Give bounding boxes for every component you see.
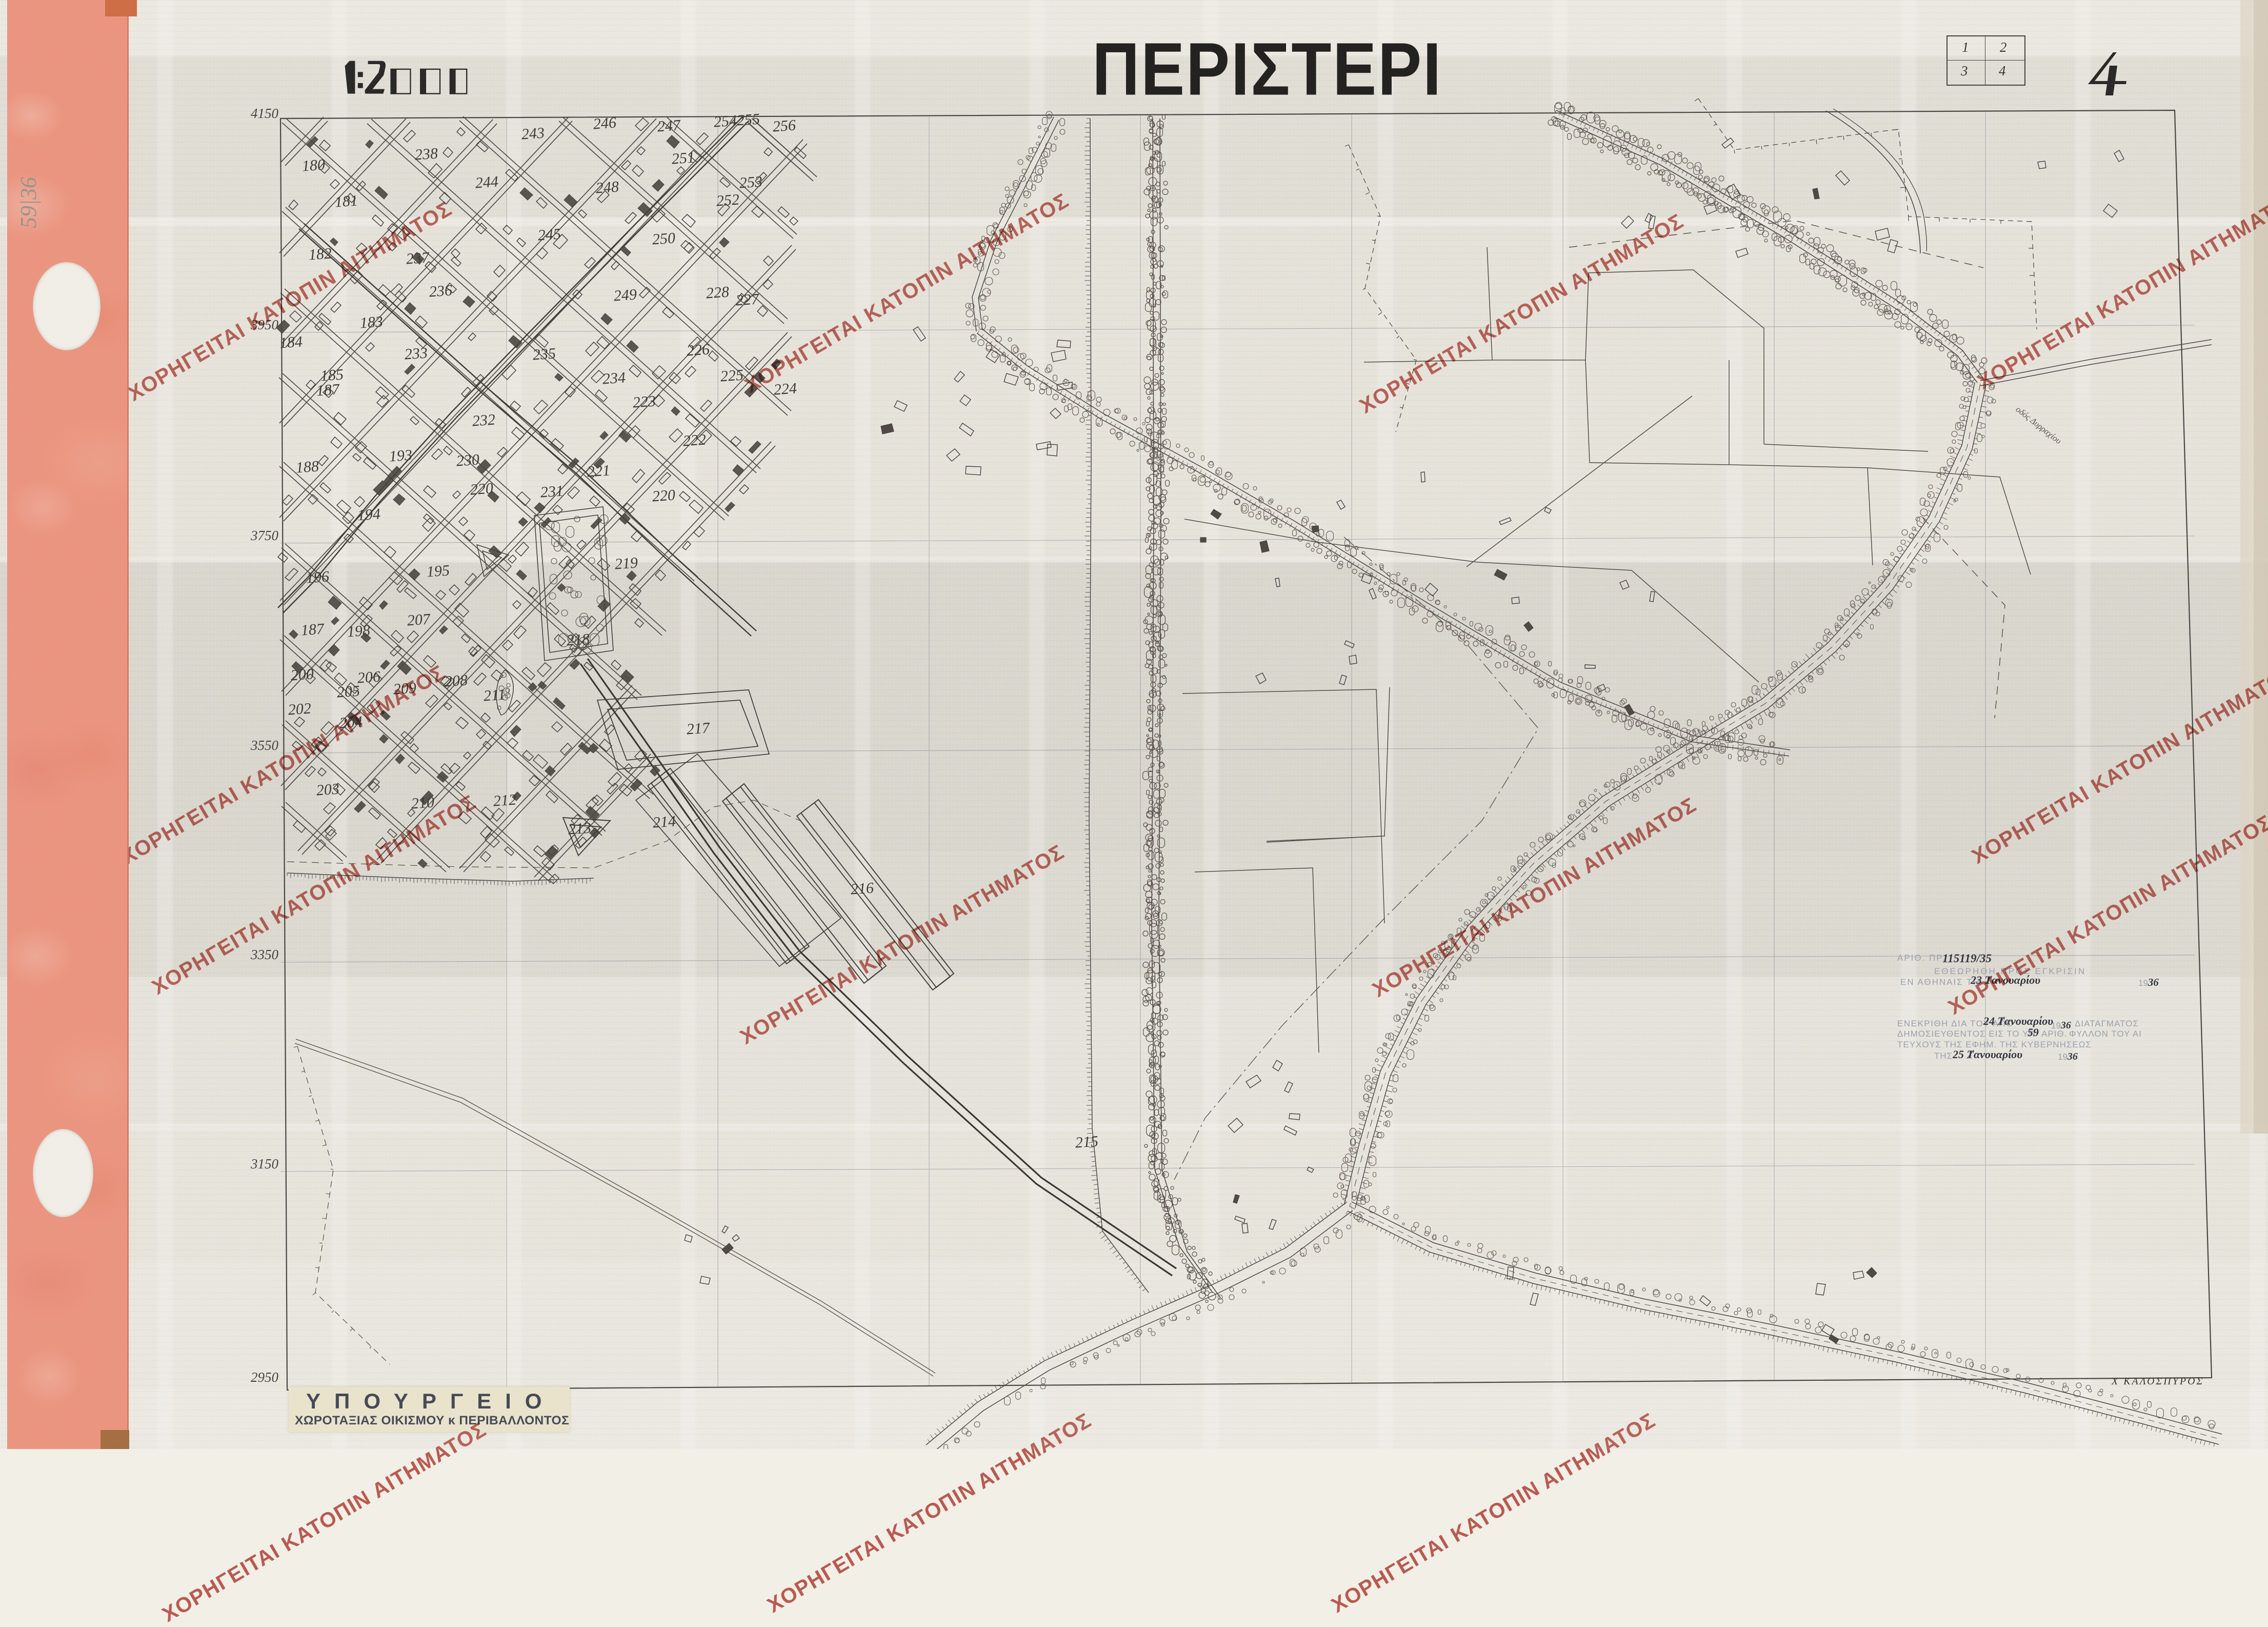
svg-text:212: 212 (493, 791, 517, 809)
svg-text:196: 196 (306, 568, 330, 586)
svg-text:227: 227 (735, 290, 760, 309)
svg-text:250: 250 (652, 229, 676, 248)
svg-text:235: 235 (532, 345, 556, 363)
svg-text:3350: 3350 (250, 947, 279, 962)
svg-text:195: 195 (426, 562, 450, 580)
svg-text:οδός Δυρραχίου: οδός Δυρραχίου (2014, 404, 2063, 446)
svg-text:188: 188 (295, 458, 319, 476)
svg-text:194: 194 (357, 505, 381, 524)
svg-text:2950: 2950 (251, 1370, 279, 1385)
svg-text:183: 183 (359, 313, 384, 331)
svg-text:214: 214 (652, 812, 676, 831)
svg-text:254: 254 (713, 112, 737, 130)
svg-text:225: 225 (720, 366, 744, 385)
svg-text:213: 213 (568, 819, 592, 838)
svg-text:187: 187 (316, 381, 341, 399)
svg-text:219: 219 (614, 554, 638, 572)
svg-text:237: 237 (406, 249, 431, 267)
svg-text:202: 202 (288, 700, 312, 718)
svg-text:246: 246 (593, 114, 617, 132)
svg-text:220: 220 (470, 480, 494, 498)
svg-text:3150: 3150 (250, 1156, 279, 1172)
svg-text:206: 206 (357, 668, 381, 686)
svg-text:247: 247 (657, 116, 682, 135)
svg-text:251: 251 (671, 149, 695, 167)
svg-text:218: 218 (566, 630, 590, 649)
svg-text:3550: 3550 (250, 738, 279, 753)
svg-text:245: 245 (537, 225, 561, 244)
svg-text:4150: 4150 (251, 106, 279, 121)
svg-text:220: 220 (652, 486, 676, 505)
svg-text:223: 223 (632, 392, 656, 411)
svg-text:205: 205 (336, 682, 360, 701)
svg-text:187: 187 (300, 620, 326, 639)
svg-text:181: 181 (334, 192, 358, 210)
svg-text:203: 203 (316, 780, 340, 799)
svg-text:207: 207 (407, 610, 432, 629)
svg-text:232: 232 (472, 411, 496, 429)
svg-text:231: 231 (540, 482, 564, 501)
svg-text:217: 217 (686, 719, 711, 738)
svg-text:215: 215 (1075, 1133, 1099, 1151)
svg-text:200: 200 (290, 665, 314, 684)
svg-text:234: 234 (602, 369, 626, 387)
svg-text:248: 248 (595, 178, 619, 196)
svg-text:230: 230 (456, 451, 480, 469)
svg-text:238: 238 (414, 145, 438, 163)
svg-text:180: 180 (302, 156, 326, 174)
svg-text:236: 236 (429, 282, 453, 300)
svg-text:198: 198 (347, 622, 371, 640)
svg-text:256: 256 (772, 116, 796, 135)
svg-text:184: 184 (279, 333, 303, 351)
svg-text:193: 193 (389, 446, 413, 465)
svg-text:216: 216 (850, 879, 874, 898)
svg-text:253: 253 (739, 173, 763, 191)
svg-text:233: 233 (404, 344, 428, 363)
svg-text:252: 252 (716, 191, 740, 209)
svg-text:222: 222 (683, 431, 707, 449)
svg-text:210: 210 (411, 793, 435, 812)
svg-text:182: 182 (308, 245, 332, 263)
svg-text:243: 243 (521, 124, 545, 143)
svg-text:211: 211 (483, 686, 506, 705)
svg-text:228: 228 (706, 283, 730, 302)
svg-text:244: 244 (475, 173, 499, 191)
svg-text:249: 249 (613, 286, 637, 304)
svg-text:221: 221 (587, 462, 611, 480)
svg-text:3750: 3750 (250, 528, 279, 543)
svg-text:226: 226 (686, 341, 710, 359)
svg-text:255: 255 (736, 110, 760, 129)
